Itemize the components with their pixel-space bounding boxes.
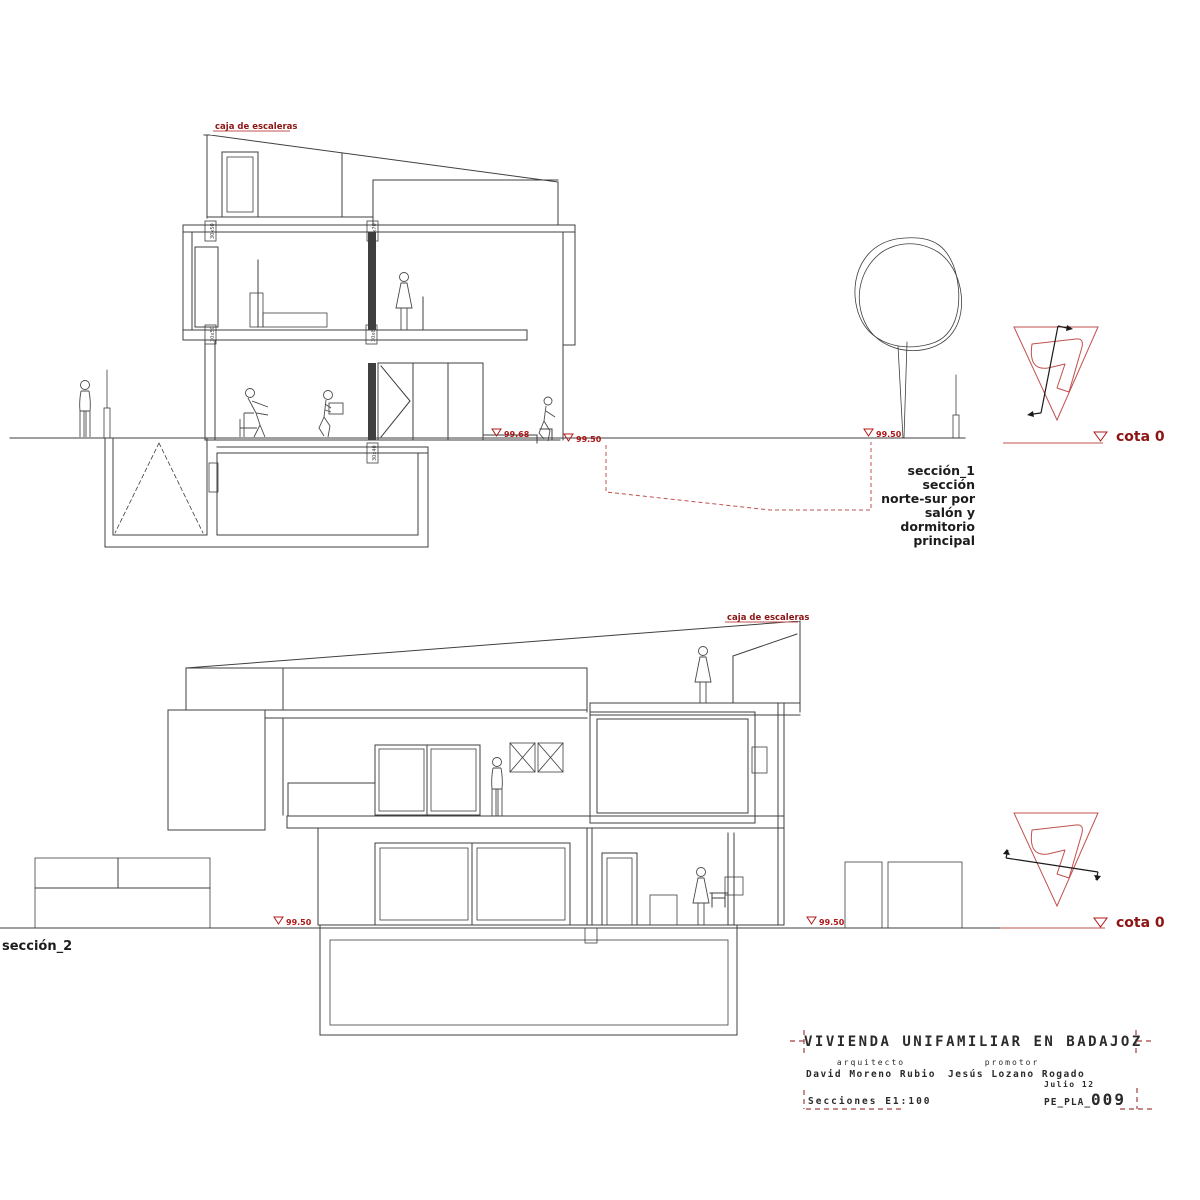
excavation-dashed-outline	[606, 442, 871, 510]
svg-text:99.68: 99.68	[504, 430, 530, 439]
svg-text:99.50: 99.50	[819, 918, 845, 927]
ground-door-leaf	[607, 858, 632, 925]
figure-sitting-person	[240, 389, 268, 438]
figure-man-upper-floor	[492, 758, 503, 817]
architect-column: arquitecto David Moreno Rubio	[800, 1058, 942, 1080]
drawing-sheet: 30x50 30x70 30x50 30x60 30x40	[0, 0, 1200, 1200]
cabinet-box	[650, 895, 677, 925]
logo-north-1	[1014, 325, 1098, 420]
figure-woman-roof-terrace	[695, 647, 711, 704]
sheet-code-number: 009	[1091, 1090, 1126, 1109]
sheet-meta: Julio 12 PE_PLA_009	[1044, 1080, 1144, 1109]
dim-floor-left: 30x50	[210, 326, 216, 342]
ground-glazed-leaf-2	[477, 848, 565, 920]
site-pole-right	[953, 375, 959, 438]
sectioned-frame-upper	[368, 232, 376, 330]
right-wall-window	[752, 747, 767, 773]
basement-pool	[320, 925, 737, 1035]
dim-roof-right: 30x70	[372, 223, 378, 239]
figure-standing-man	[80, 381, 91, 438]
promoter-name: Jesús Lozano Rogado	[948, 1069, 1076, 1080]
site-pole-left	[104, 370, 110, 438]
desc-line-2: sección	[922, 477, 975, 492]
sectioned-frame-lower	[368, 363, 376, 440]
svg-text:99.50: 99.50	[876, 430, 902, 439]
cota0-datum-1: cota 0	[1003, 429, 1165, 445]
tree	[855, 238, 962, 438]
svg-text:cota 0: cota 0	[1116, 429, 1165, 445]
promoter-role: promotor	[948, 1058, 1076, 1067]
architect-role: arquitecto	[800, 1058, 942, 1067]
level-marker2-9950-a: 99.50	[274, 917, 312, 927]
sheet-name: Secciones E1:100	[808, 1096, 932, 1107]
cota0-datum-2: cota 0	[1000, 915, 1165, 931]
slab-dimension-tags: 30x50 30x70 30x50 30x60 30x40	[205, 221, 378, 463]
section2-label: sección_2	[2, 939, 72, 954]
level-marker-9950-a: 99.50	[564, 434, 602, 444]
section-2: caja de escaleras 99.50 99.50 cota 0	[0, 613, 1165, 1035]
dim-roof-left: 30x50	[210, 223, 216, 239]
project-title: VIVIENDA UNIFAMILIAR EN BADAJOZ	[804, 1034, 1140, 1050]
crawlspace-dashed-triangle	[115, 443, 203, 533]
desc-line-5: dormitorio	[900, 519, 975, 534]
glazed-door	[378, 363, 483, 440]
casement-windows	[510, 743, 563, 772]
desc-line-3: norte-sur por	[881, 491, 976, 506]
section2-building-lines	[35, 621, 800, 925]
bedside-unit	[250, 293, 263, 327]
right-terrace-blocks	[845, 862, 962, 928]
sheet-code-prefix: PE_PLA_	[1044, 1097, 1091, 1108]
dim-basement: 30x40	[372, 445, 378, 461]
upper-window-leaf-1	[379, 749, 424, 811]
bed	[263, 313, 327, 327]
ground-glazed-leaf-1	[380, 848, 468, 920]
wardrobe	[195, 247, 218, 327]
figure-person-on-steps	[539, 397, 555, 441]
level-marker2-9950-b: 99.50	[807, 917, 845, 927]
sheet-date: Julio 12	[1044, 1080, 1144, 1089]
architectural-drawing: 30x50 30x70 30x50 30x60 30x40	[0, 0, 1200, 1200]
figure-person-carrying	[319, 391, 343, 438]
figure-woman-ground-floor	[693, 868, 709, 926]
title-block: VIVIENDA UNIFAMILIAR EN BADAJOZ arquitec…	[786, 1026, 1156, 1122]
section1-description: sección_1 sección norte-sur por salón y …	[881, 463, 976, 548]
section1-building-lines	[105, 135, 575, 547]
svg-text:99.50: 99.50	[576, 435, 602, 444]
section-1: 30x50 30x70 30x50 30x60 30x40	[10, 122, 1165, 548]
left-terrace-block	[35, 858, 210, 928]
architect-name: David Moreno Rubio	[800, 1069, 942, 1080]
promoter-column: promotor Jesús Lozano Rogado	[948, 1058, 1076, 1080]
sheet-code: PE_PLA_009	[1044, 1090, 1144, 1109]
svg-text:99.50: 99.50	[286, 918, 312, 927]
desc-line-6: principal	[913, 533, 975, 548]
stair-label-1: caja de escaleras	[215, 122, 297, 132]
desc-line-4: salón y	[925, 505, 975, 520]
stair-label-2: caja de escaleras	[727, 613, 809, 623]
svg-text:cota 0: cota 0	[1116, 915, 1165, 931]
dim-floor-right: 30x60	[371, 326, 377, 342]
upper-window-leaf-2	[431, 749, 476, 811]
stairbox-door-leaf	[227, 157, 253, 212]
left-volume	[168, 710, 265, 830]
figure-woman-bedroom	[396, 273, 412, 331]
logo-north-2	[1003, 813, 1101, 906]
